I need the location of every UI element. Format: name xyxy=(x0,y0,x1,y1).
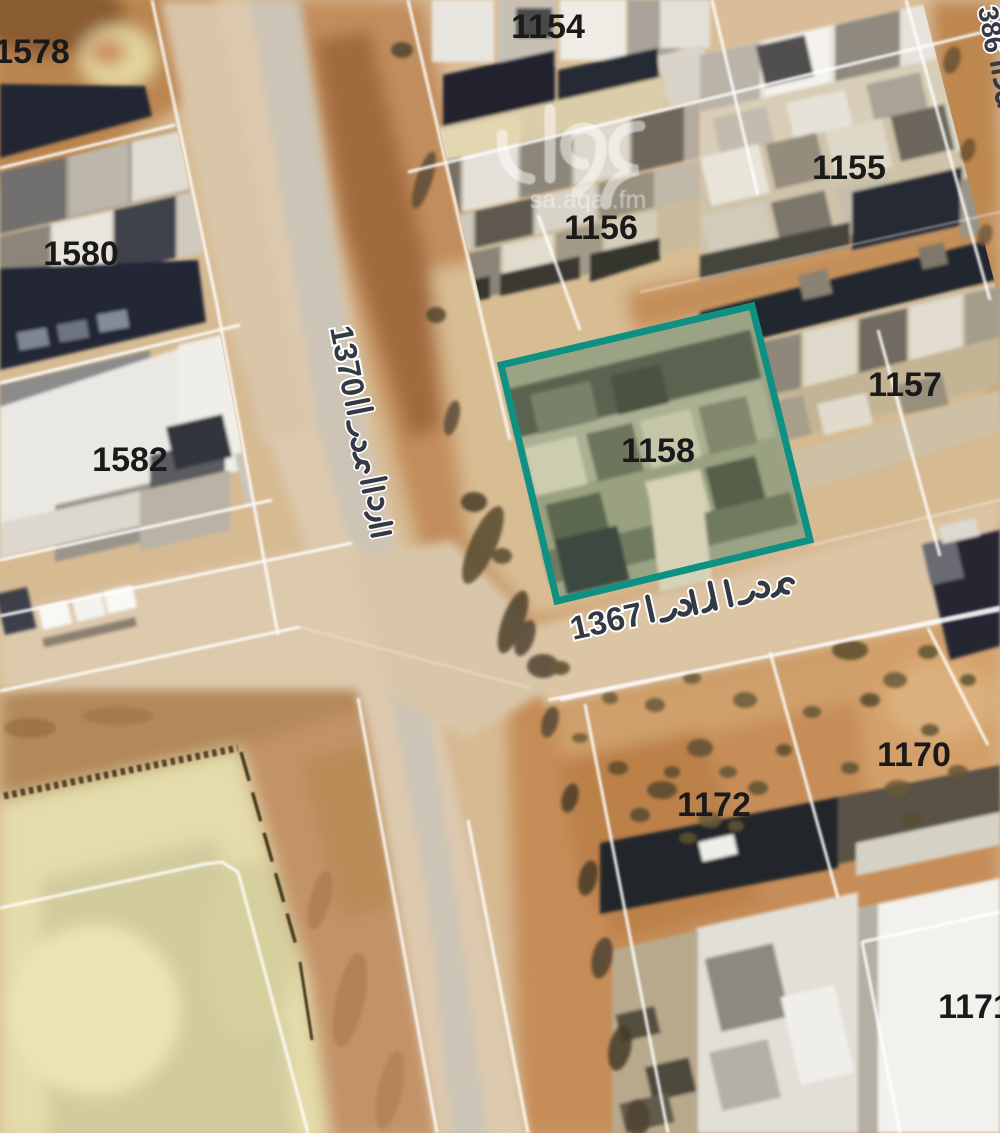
svg-text:1157: 1157 xyxy=(868,366,942,404)
svg-text:1171: 1171 xyxy=(938,988,1000,1026)
svg-text:1154: 1154 xyxy=(511,8,585,46)
svg-text:1158: 1158 xyxy=(621,432,695,470)
svg-text:1156: 1156 xyxy=(564,209,638,247)
svg-text:1155: 1155 xyxy=(812,149,886,187)
svg-text:1580: 1580 xyxy=(43,235,119,273)
svg-text:1172: 1172 xyxy=(677,786,751,824)
svg-text:1582: 1582 xyxy=(92,441,168,479)
svg-text:1170: 1170 xyxy=(877,736,951,774)
svg-text:1578: 1578 xyxy=(0,33,70,71)
